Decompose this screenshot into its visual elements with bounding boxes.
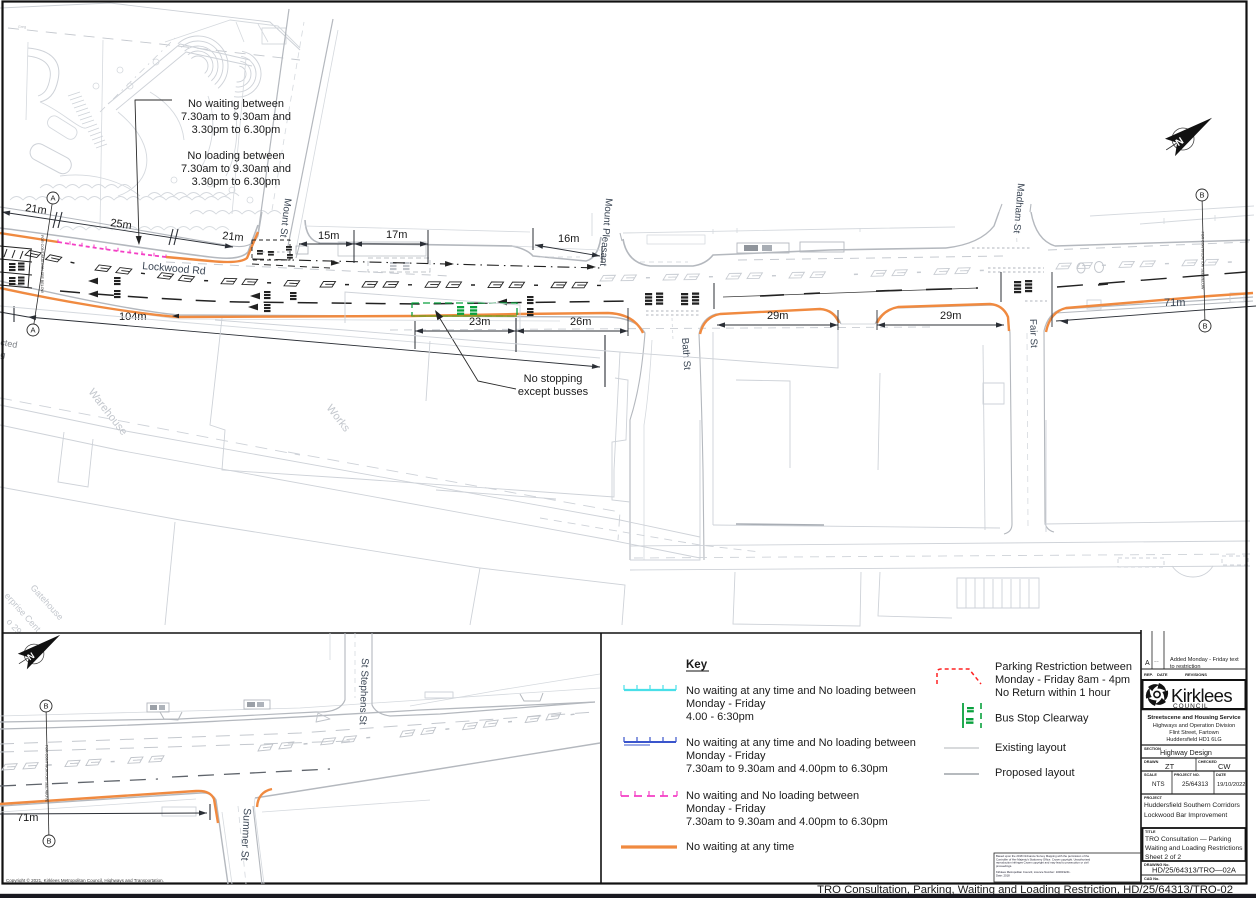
svg-text:Monday - Friday: Monday - Friday [686,803,766,815]
svg-text:Lockwood Bar Improvement: Lockwood Bar Improvement [1144,812,1227,819]
svg-text:Proposed layout: Proposed layout [995,767,1075,779]
svg-text:Date: 2018: Date: 2018 [996,873,1010,877]
svg-text:Flint Street, Fartown: Flint Street, Fartown [1169,730,1219,736]
svg-text:HD/25/64313/TRO—02A: HD/25/64313/TRO—02A [1152,866,1237,875]
svg-text:B: B [46,837,51,846]
svg-text:TRO Consultation — Parking: TRO Consultation — Parking [1145,836,1232,843]
svg-text:REVISIONS: REVISIONS [1185,672,1207,677]
svg-text:Key: Key [686,659,708,671]
svg-text:except busses: except busses [518,386,589,398]
svg-text:Monday - Friday: Monday - Friday [686,698,766,710]
svg-text:PROJECT: PROJECT [1144,796,1163,800]
svg-text:71m: 71m [1164,297,1185,309]
svg-text:71m: 71m [17,812,38,824]
svg-text:Huddersfield HD1 6LG: Huddersfield HD1 6LG [1166,737,1221,743]
svg-text:CW: CW [1218,762,1231,771]
svg-text:Parking Restriction between: Parking Restriction between [995,661,1132,673]
svg-text:15m: 15m [318,230,339,242]
svg-text:CHECKED: CHECKED [1198,760,1217,764]
svg-text:23m: 23m [469,316,490,328]
svg-text:29m: 29m [767,310,788,322]
svg-text:SECTION: SECTION [1144,747,1161,751]
svg-text:29m: 29m [940,310,961,322]
svg-text:FOR CONTINUATION SEE BELOW: FOR CONTINUATION SEE BELOW [1201,232,1205,290]
svg-text:26m: 26m [570,316,591,328]
svg-text:4.00 - 6:30pm: 4.00 - 6:30pm [686,711,754,723]
svg-text:B: B [43,702,48,711]
svg-text:FOR CONTINUATION SEE ABOVE: FOR CONTINUATION SEE ABOVE [45,745,49,803]
svg-text:A: A [50,194,55,203]
svg-text:~~: ~~ [1154,659,1159,664]
svg-text:PROJECT NO.: PROJECT NO. [1174,773,1200,777]
svg-text:21m: 21m [222,230,245,244]
svg-text:CAD No.: CAD No. [1144,877,1159,881]
svg-text:7.30am to 9.30am and 4.00pm to: 7.30am to 9.30am and 4.00pm to 6.30pm [686,816,888,828]
svg-text:Waiting and Loading Restric: Waiting and Loading Restrictions [1145,845,1243,852]
svg-text:FOR CONTINUATION SEE BELOW: FOR CONTINUATION SEE BELOW [40,235,44,293]
svg-text:Streetscene and Housing Servic: Streetscene and Housing Service [1147,715,1241,721]
svg-text:A: A [30,326,35,335]
svg-text:DATE: DATE [1216,773,1227,777]
svg-text:25/64313: 25/64313 [1182,781,1209,788]
svg-text:7.30am to 9.30am and: 7.30am to 9.30am and [181,111,291,123]
svg-text:7.30am to 9.30am and: 7.30am to 9.30am and [181,163,291,175]
svg-text:ZT: ZT [1165,762,1175,771]
svg-text:NTS: NTS [1152,781,1165,788]
svg-text:Existing layout: Existing layout [995,742,1066,754]
svg-text:proceedings.: proceedings. [996,864,1012,868]
svg-text:3.30pm to 6.30pm: 3.30pm to 6.30pm [192,124,281,136]
svg-text:B: B [1199,191,1204,200]
svg-text:Highways and Operation Divisio: Highways and Operation Division [1153,723,1235,729]
svg-text:3.30pm to 6.30pm: 3.30pm to 6.30pm [192,176,281,188]
svg-text:Monday - Friday 8am - 4pm: Monday - Friday 8am - 4pm [995,674,1130,686]
svg-text:No waiting between: No waiting between [188,98,284,110]
svg-text:7.30am to 9.30am and 4.00pm to: 7.30am to 9.30am and 4.00pm to 6.30pm [686,763,888,775]
svg-text:No waiting at any time and No: No waiting at any time and No loading be… [686,737,916,749]
svg-text:No loading between: No loading between [187,150,284,162]
svg-text:No Return within 1 hour: No Return within 1 hour [995,687,1111,699]
svg-text:Fair St: Fair St [1027,319,1039,348]
svg-text:Bus Stop Clearway: Bus Stop Clearway [995,713,1089,725]
svg-text:No waiting and No loading betw: No waiting and No loading between [686,790,859,802]
svg-text:Greg: Greg [18,25,26,29]
svg-text:No waiting at any time and No: No waiting at any time and No loading be… [686,685,916,697]
svg-text:No waiting at any time: No waiting at any time [686,841,794,853]
svg-text:Added Monday - Friday text: Added Monday - Friday text [1170,657,1239,663]
svg-text:St Stephens St: St Stephens St [357,658,370,725]
svg-text:17m: 17m [386,229,407,241]
svg-text:Huddersfield Southern Corrid: Huddersfield Southern Corridors [1144,802,1241,809]
svg-text:Monday - Friday: Monday - Friday [686,750,766,762]
svg-text:SCALE: SCALE [1144,773,1157,777]
svg-text:B: B [1202,322,1207,331]
svg-text:Sheet 2 of 2: Sheet 2 of 2 [1145,854,1181,861]
svg-text:A: A [1145,660,1150,667]
svg-text:16m: 16m [558,233,579,245]
svg-text:No stopping: No stopping [524,373,583,385]
svg-text:Bath St: Bath St [679,337,692,370]
svg-text:REP.: REP. [1144,672,1153,677]
svg-text:Copyright © 2021, Kirklees Met: Copyright © 2021, Kirklees Metropolitan … [6,877,164,883]
svg-text:Highway Design: Highway Design [1160,748,1212,757]
svg-text:TITLE: TITLE [1145,830,1156,834]
svg-text:DRAWN: DRAWN [1144,760,1159,764]
svg-text:19/10/2022: 19/10/2022 [1217,782,1245,788]
svg-text:DATE: DATE [1157,672,1168,677]
